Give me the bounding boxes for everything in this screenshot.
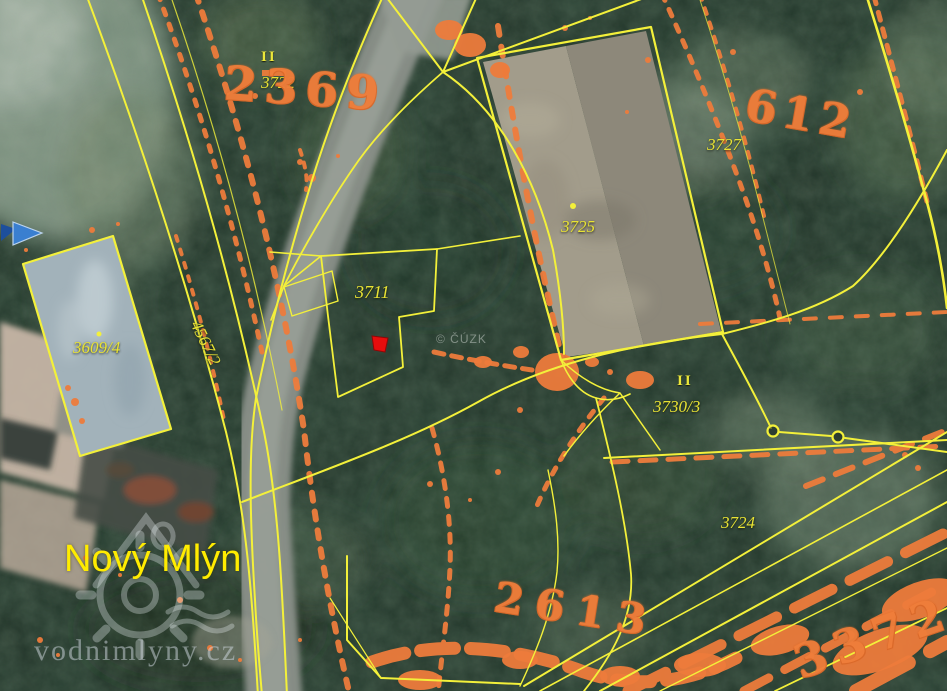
selected-point-marker[interactable] <box>372 336 388 352</box>
parcel-label-3724: 3724 <box>721 514 755 531</box>
cadastral-map-view[interactable]: II 3722 2369 612 3727 3725 3711 3609/4 4… <box>0 0 947 691</box>
parcel-label-3725: 3725 <box>561 218 595 235</box>
land-use-symbol-3730: II <box>677 374 693 389</box>
cuzk-attribution: © ČÚZK <box>436 333 487 345</box>
historic-number-2369: 2369 <box>223 60 389 118</box>
site-watermark: vodnimlyny.cz <box>34 636 237 666</box>
parcel-label-3730-3: 3730/3 <box>653 398 700 415</box>
parcel-label-3711: 3711 <box>355 283 390 301</box>
parcel-label-3727: 3727 <box>707 136 741 153</box>
place-name-label: Nový Mlýn <box>64 540 241 578</box>
parcel-label-3609-4: 3609/4 <box>73 339 120 356</box>
